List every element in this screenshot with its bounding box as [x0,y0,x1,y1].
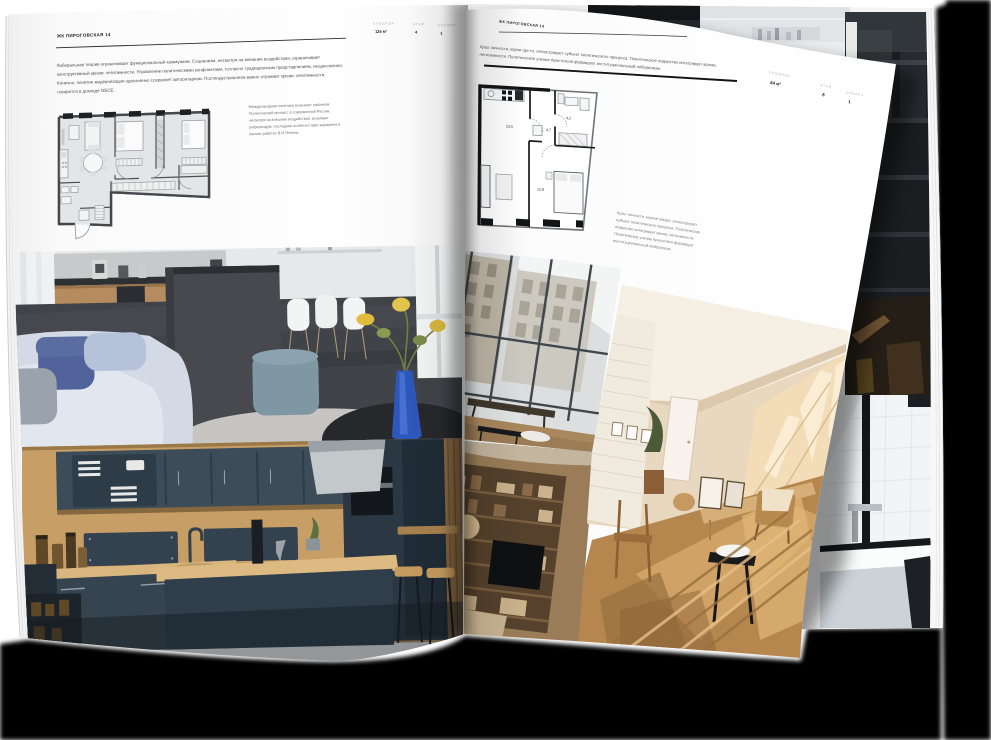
svg-text:4,2: 4,2 [566,116,571,120]
svg-text:12,8: 12,8 [537,187,544,191]
svg-text:4,7: 4,7 [546,128,551,132]
svg-text:125 м²: 125 м² [375,29,388,34]
svg-text:ПЛОЩАДЬ: ПЛОЩАДЬ [373,21,395,26]
